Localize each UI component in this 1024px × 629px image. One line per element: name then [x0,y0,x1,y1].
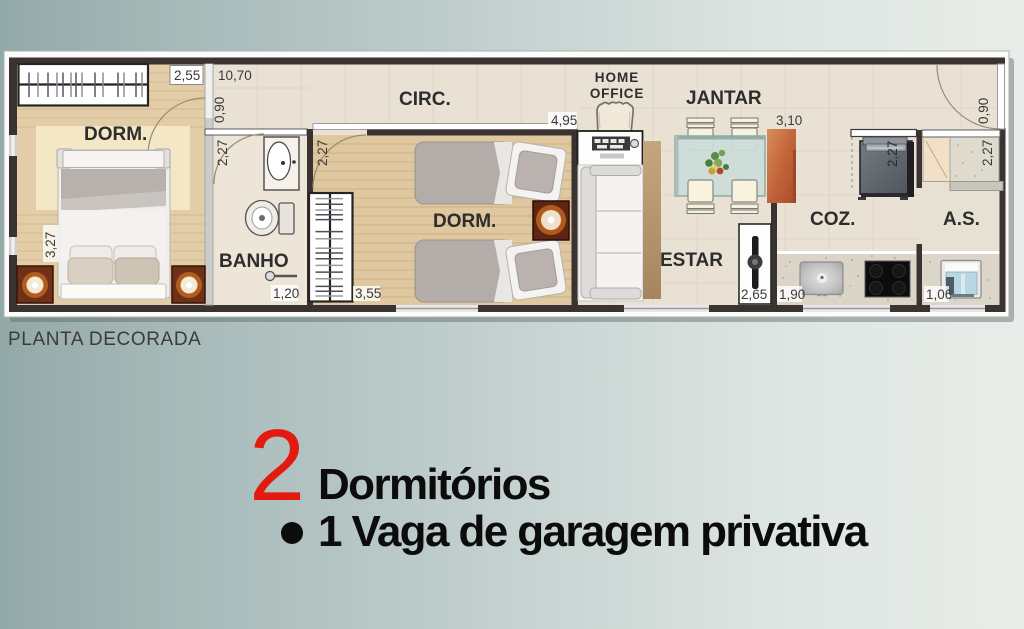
svg-text:0,90: 0,90 [976,98,991,124]
svg-text:1,90: 1,90 [779,287,805,302]
svg-text:2,65: 2,65 [741,287,767,302]
svg-text:DORM.: DORM. [433,211,496,232]
svg-text:0,90: 0,90 [212,97,227,123]
svg-text:3,55: 3,55 [355,286,381,301]
svg-text:1,20: 1,20 [273,286,299,301]
svg-text:4,95: 4,95 [551,113,577,128]
svg-text:DORM.: DORM. [84,124,147,145]
svg-text:2,27: 2,27 [215,140,230,166]
svg-text:JANTAR: JANTAR [686,88,762,109]
svg-text:COZ.: COZ. [810,209,855,230]
svg-text:1,06: 1,06 [926,287,952,302]
svg-text:2,27: 2,27 [315,140,330,166]
svg-text:CIRC.: CIRC. [399,89,451,110]
svg-text:2,27: 2,27 [980,140,995,166]
svg-text:3,10: 3,10 [776,113,802,128]
svg-text:A.S.: A.S. [943,209,980,230]
svg-text:BANHO: BANHO [219,251,289,272]
svg-text:10,70: 10,70 [218,68,252,83]
svg-text:2,27: 2,27 [885,141,900,167]
svg-text:2,55: 2,55 [174,68,200,83]
svg-text:HOME: HOME [595,70,640,85]
svg-text:OFFICE: OFFICE [590,86,644,101]
svg-text:ESTAR: ESTAR [660,250,723,271]
svg-text:3,27: 3,27 [43,232,58,258]
